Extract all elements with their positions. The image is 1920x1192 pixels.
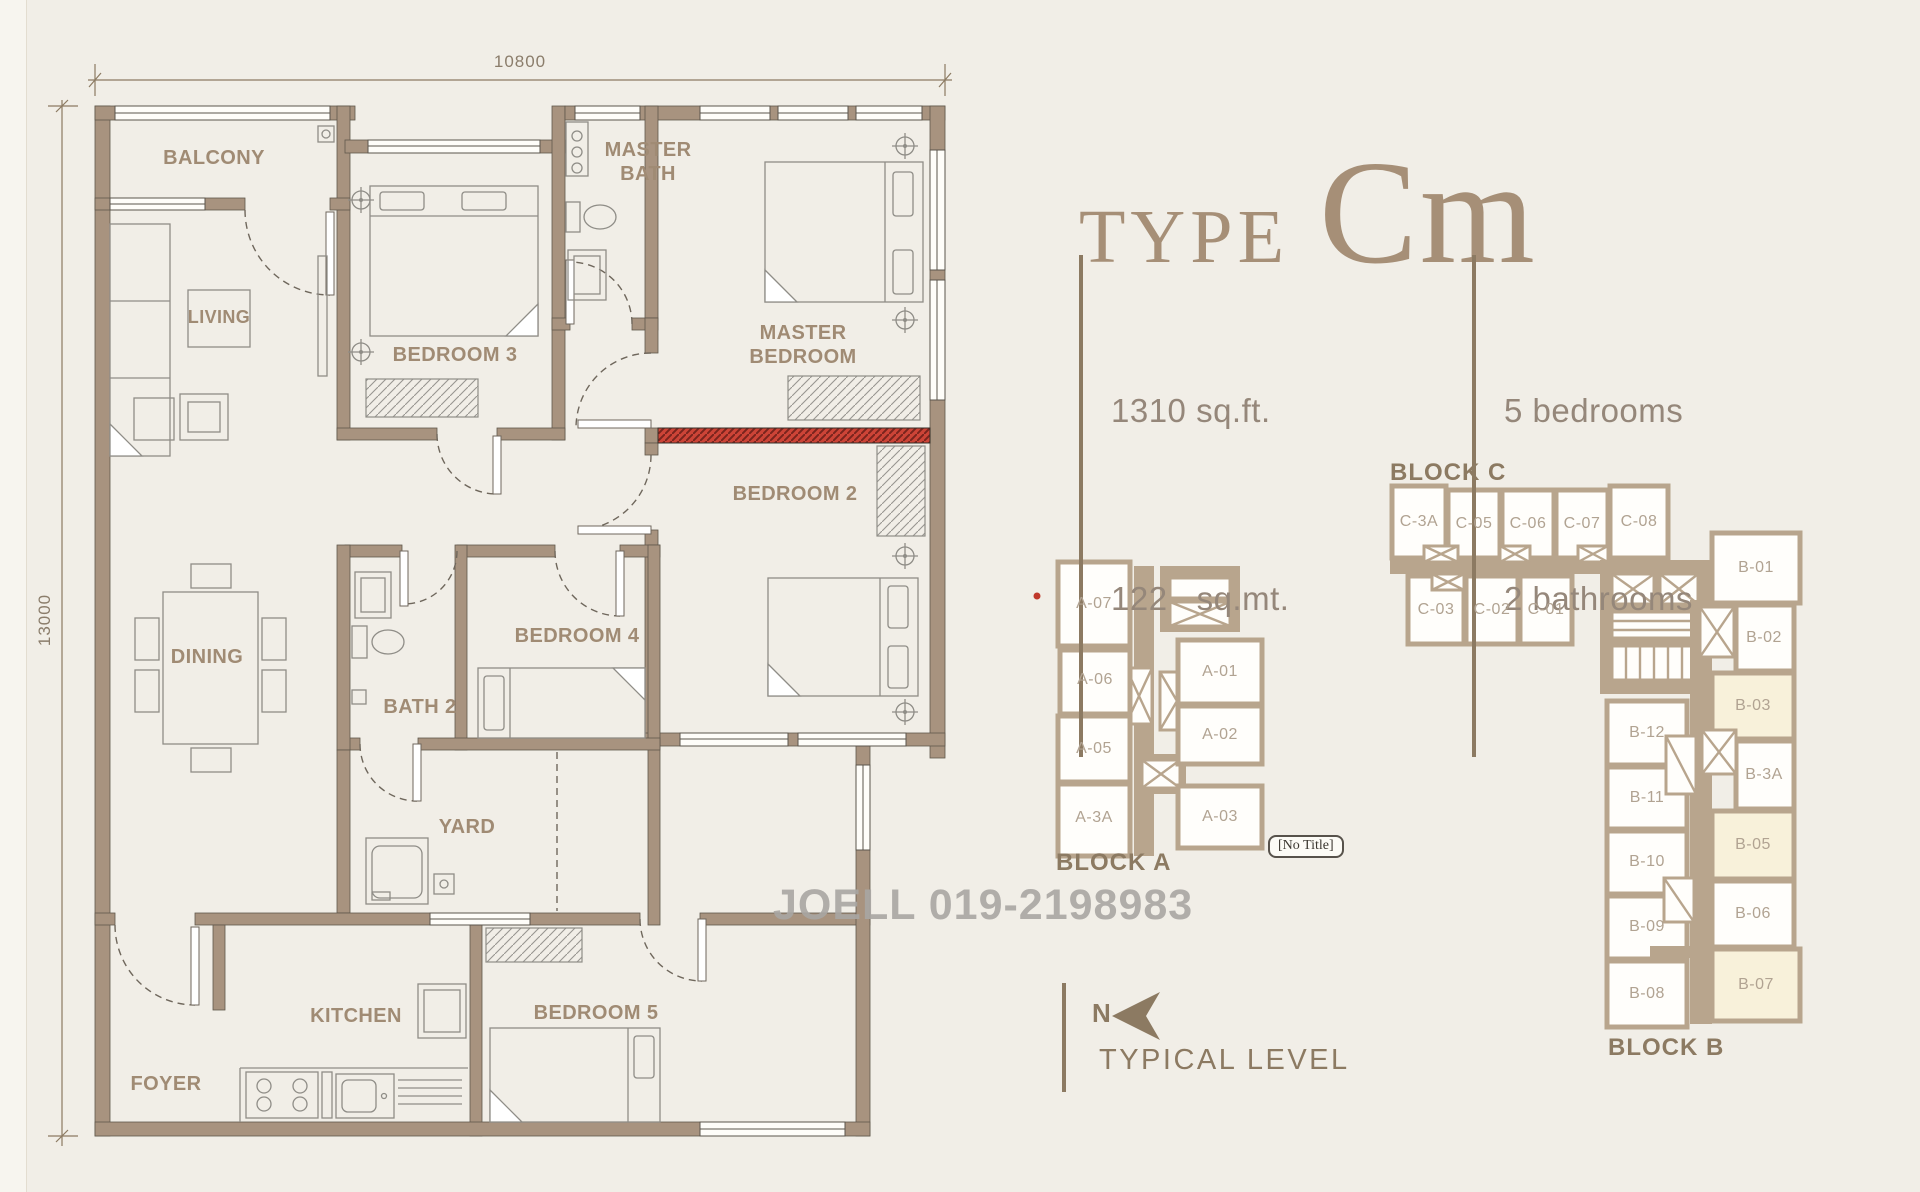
room-label-master-bedroom: MASTER BEDROOM: [723, 321, 883, 369]
furniture-layer: [110, 122, 925, 1122]
unit-label-b10: B-10: [1629, 853, 1665, 871]
unit-label-a01: A-01: [1202, 663, 1238, 681]
block-a-title: BLOCK A: [1056, 849, 1171, 877]
room-label-dining: DINING: [171, 645, 243, 669]
unit-label-c08: C-08: [1621, 513, 1658, 531]
unit-label-b08: B-08: [1629, 985, 1665, 1003]
unit-label-c3a: C-3A: [1400, 513, 1438, 531]
unit-label-c07: C-07: [1564, 515, 1601, 533]
bedroom-count: 5 bedrooms: [1504, 380, 1693, 443]
room-count-specs: 5 bedrooms 2 bathrooms: [1472, 255, 1693, 757]
room-label-foyer: FOYER: [131, 1072, 202, 1096]
block-b-title: BLOCK B: [1608, 1034, 1724, 1062]
red-dot-marker: [1034, 593, 1041, 600]
walls-layer: [95, 106, 945, 1136]
dimension-top: 10800: [494, 52, 546, 72]
room-label-bedroom3: BEDROOM 3: [393, 343, 518, 367]
tooltip: [No Title]: [1268, 835, 1344, 858]
level-label: TYPICAL LEVEL: [1099, 1044, 1350, 1077]
floorplan-page: 10800 13000 BALCONY LIVING BEDROOM 3 MAS…: [0, 0, 1920, 1192]
area-sqft: 1310 sq.ft.: [1111, 380, 1289, 443]
unit-label-b03: B-03: [1735, 697, 1771, 715]
dimension-lines: [48, 64, 952, 1146]
unit-label-a03: A-03: [1202, 808, 1238, 826]
compass-north-label: N: [1092, 998, 1112, 1029]
unit-label-b05: B-05: [1735, 836, 1771, 854]
block-c-title: BLOCK C: [1390, 459, 1506, 487]
unit-label-b3a: B-3A: [1745, 766, 1783, 784]
unit-label-a05: A-05: [1076, 740, 1112, 758]
unit-label-a07: A-07: [1076, 595, 1112, 613]
unit-label-c01: C-01: [1528, 601, 1565, 619]
room-label-yard: YARD: [439, 815, 495, 839]
room-label-bath2: BATH 2: [383, 695, 456, 719]
room-label-bedroom5: BEDROOM 5: [534, 1001, 659, 1025]
unit-label-b01: B-01: [1738, 559, 1774, 577]
unit-label-c02: C-02: [1474, 601, 1511, 619]
unit-label-b02: B-02: [1746, 629, 1782, 647]
north-arrow-icon: [1112, 992, 1160, 1040]
unit-label-b12: B-12: [1629, 724, 1665, 742]
red-hatched-wall: [658, 428, 930, 443]
room-label-kitchen: KITCHEN: [310, 1004, 402, 1028]
doors-layer: [115, 210, 706, 1005]
room-label-bedroom4: BEDROOM 4: [515, 624, 640, 648]
unit-label-c03: C-03: [1418, 601, 1455, 619]
windows-layer: [110, 106, 945, 1136]
unit-label-b09: B-09: [1629, 918, 1665, 936]
unit-label-c05: C-05: [1456, 515, 1493, 533]
unit-label-a06: A-06: [1077, 671, 1113, 689]
room-label-bedroom2: BEDROOM 2: [733, 482, 858, 506]
unit-label-b06: B-06: [1735, 905, 1771, 923]
unit-label-a02: A-02: [1202, 726, 1238, 744]
room-label-living: LIVING: [188, 307, 250, 329]
dimension-left: 13000: [35, 594, 55, 646]
area-sqmt: 122 sq.mt.: [1111, 568, 1289, 631]
room-label-master-bath: MASTER BATH: [596, 138, 701, 186]
bathroom-count: 2 bathrooms: [1504, 568, 1693, 631]
unit-label-b11: B-11: [1630, 789, 1665, 807]
agent-watermark: JOELL 019-2198983: [773, 881, 1193, 930]
room-label-balcony: BALCONY: [163, 146, 265, 170]
unit-label-a3a: A-3A: [1075, 809, 1113, 827]
unit-label-b07: B-07: [1738, 976, 1774, 994]
unit-label-c06: C-06: [1510, 515, 1547, 533]
